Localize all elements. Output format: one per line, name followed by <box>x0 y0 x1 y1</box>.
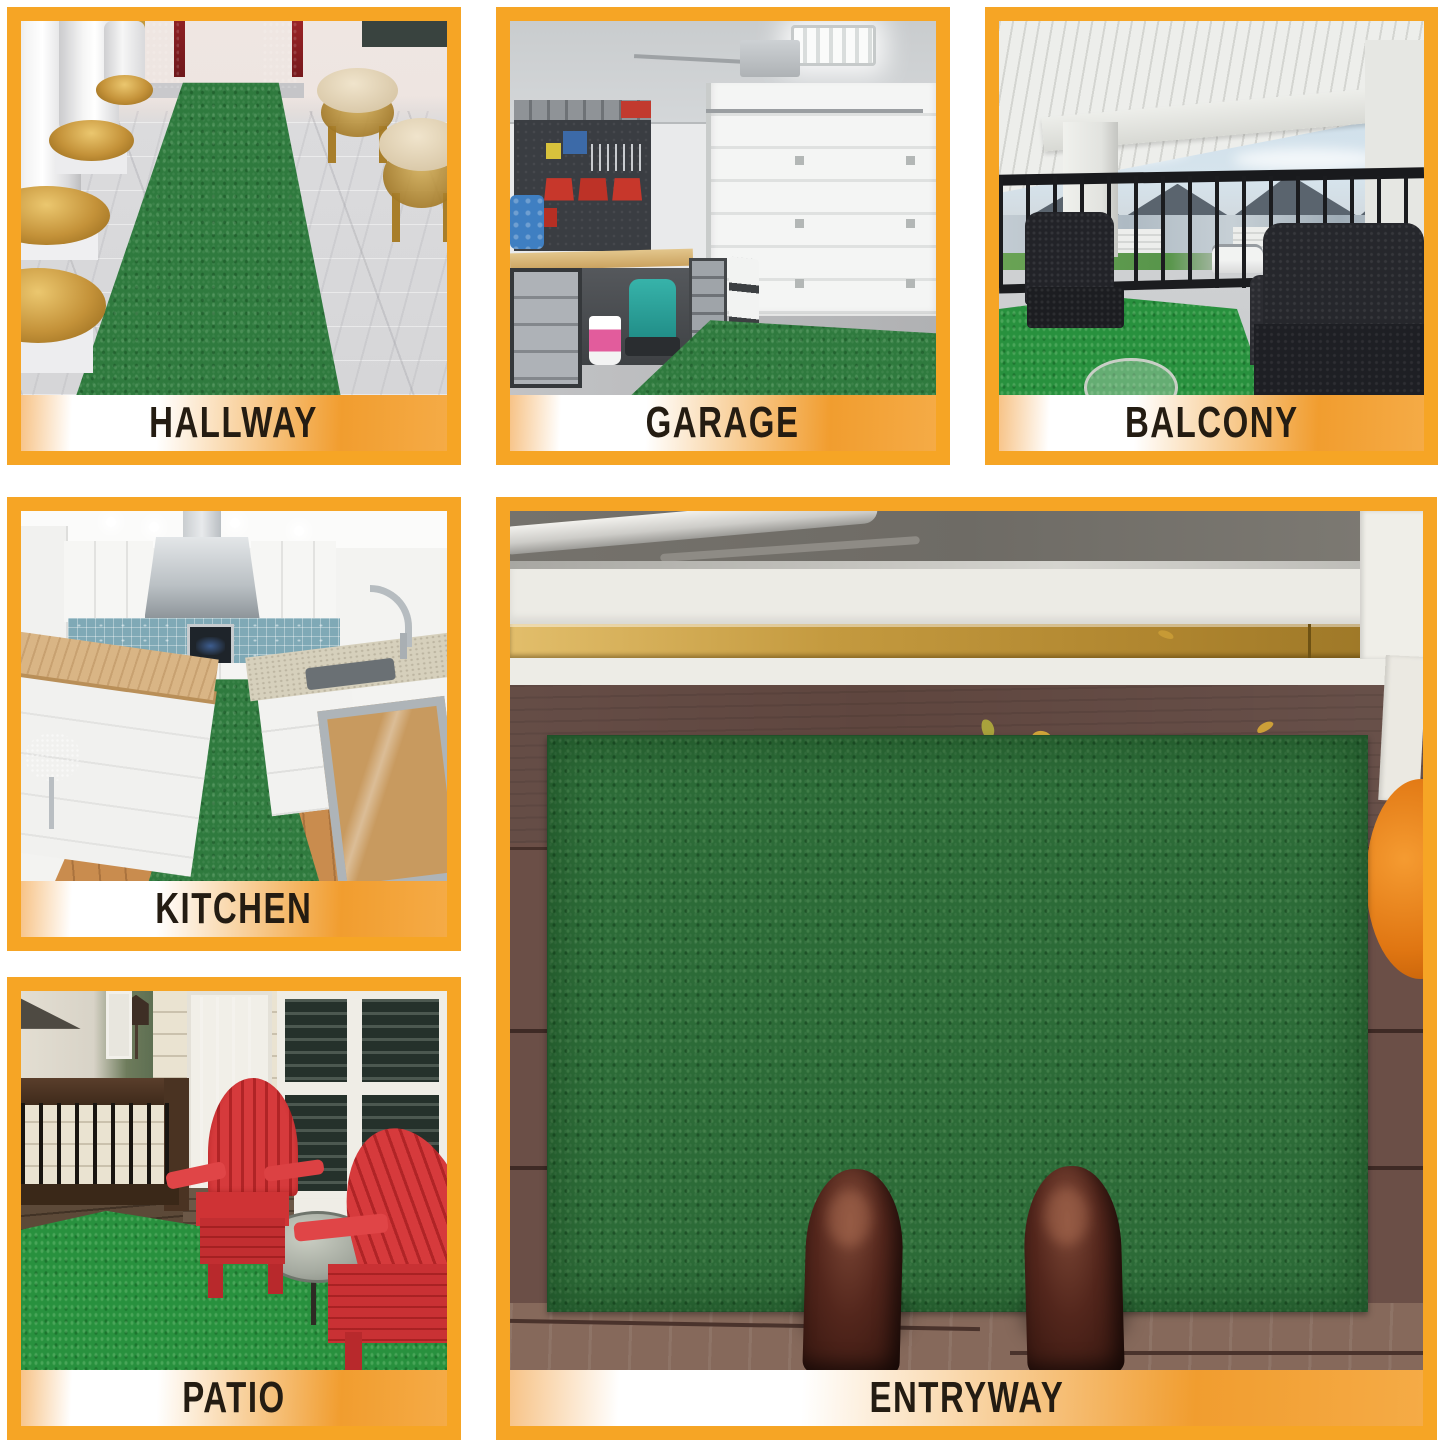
pendant-light <box>106 517 116 527</box>
panel-garage: GARAGE <box>496 7 950 465</box>
boot-highlight <box>827 1189 872 1248</box>
kitchen-photo <box>21 511 447 881</box>
garage-photo <box>510 21 936 395</box>
panel-label: GARAGE <box>646 401 800 445</box>
white-door-jamb <box>1360 511 1423 659</box>
entryway-photo <box>510 511 1423 1370</box>
range-hood <box>145 537 260 618</box>
window-mullion <box>277 1082 447 1095</box>
door-hinge <box>795 156 804 165</box>
label-strip: KITCHEN <box>21 881 447 937</box>
hallway-photo <box>21 21 447 395</box>
deck-boards-bottom <box>510 1303 1423 1370</box>
upper-cabinets-left <box>64 541 153 622</box>
panel-label: BALCONY <box>1125 401 1299 445</box>
paint-bucket <box>589 316 621 365</box>
product-image-collage: HALLWAY <box>0 0 1445 1447</box>
armor-statue-right <box>262 21 298 88</box>
armor-statue-left <box>145 21 179 88</box>
garage-door-opener <box>740 40 800 77</box>
white-door-sill <box>510 569 1423 624</box>
wood-front-appliance <box>317 696 447 881</box>
balcony-photo <box>999 21 1424 395</box>
boot-highlight <box>1044 1186 1089 1245</box>
panel-balcony: BALCONY <box>985 7 1438 465</box>
door-hinge <box>795 219 804 228</box>
railing-balusters <box>21 1103 174 1190</box>
torsion-spring-bar <box>706 109 923 113</box>
panel-entryway: ENTRYWAY <box>496 497 1437 1440</box>
recessed-light <box>294 526 304 536</box>
hanging-tools <box>591 144 642 170</box>
patio-photo <box>21 991 447 1370</box>
red-adirondack-chair-apron <box>200 1218 285 1263</box>
deck-railing-bottom <box>21 1184 179 1205</box>
red-tool-bin <box>578 178 608 200</box>
label-strip: HALLWAY <box>21 395 447 451</box>
door-hinge <box>795 279 804 288</box>
label-strip: BALCONY <box>999 395 1424 451</box>
label-strip: GARAGE <box>510 395 936 451</box>
threshold-seam <box>1308 624 1311 658</box>
silver-cabinet <box>510 268 582 388</box>
bar-stool <box>25 733 80 781</box>
panel-label: PATIO <box>182 1376 285 1420</box>
deck-railing-top <box>21 1078 187 1105</box>
door-frame-line <box>510 561 1423 569</box>
upper-cabinets-right <box>251 541 336 622</box>
door-hinge <box>906 156 915 165</box>
panel-patio: PATIO <box>7 977 461 1440</box>
cloud <box>1233 148 1382 170</box>
leather-boot-right <box>1022 1165 1124 1370</box>
red-tool-bin <box>544 178 574 200</box>
panel-kitchen: KITCHEN <box>7 497 461 951</box>
wicker-chair-seat <box>1027 287 1125 328</box>
vacuum-base <box>625 337 680 356</box>
shop-vacuum <box>629 279 676 343</box>
birdhouse-pole <box>135 1021 138 1059</box>
brass-threshold <box>510 624 1423 658</box>
recessed-light <box>149 522 159 532</box>
panel-hallway: HALLWAY <box>7 7 461 465</box>
label-strip: PATIO <box>21 1370 447 1426</box>
white-sill-strip <box>510 658 1423 685</box>
oven-window <box>196 637 226 656</box>
gold-column-base <box>96 75 154 105</box>
label-strip: ENTRYWAY <box>510 1370 1423 1426</box>
faucet-stem <box>400 633 407 659</box>
dark-transom-window <box>362 21 447 47</box>
red-storage-box <box>621 101 651 118</box>
stool-cushion <box>317 68 398 113</box>
yellow-toolbox <box>546 143 561 160</box>
ceiling-light <box>791 25 876 66</box>
wicker-chair-seat <box>1254 324 1424 395</box>
blue-foam-rolls <box>510 195 544 249</box>
sidelight-window <box>106 991 132 1059</box>
stool-pole <box>49 777 54 829</box>
gold-column-base <box>49 120 134 161</box>
leather-boot-left <box>802 1168 904 1370</box>
green-door-mat <box>547 735 1368 1312</box>
blue-toolbox <box>563 131 586 153</box>
red-tool-bin <box>612 178 642 200</box>
door-hinge <box>906 219 915 228</box>
chair-leg <box>345 1332 362 1370</box>
door-hinge <box>906 279 915 288</box>
panel-label: ENTRYWAY <box>869 1376 1064 1420</box>
panel-label: KITCHEN <box>155 887 312 931</box>
panel-label: HALLWAY <box>150 401 319 445</box>
